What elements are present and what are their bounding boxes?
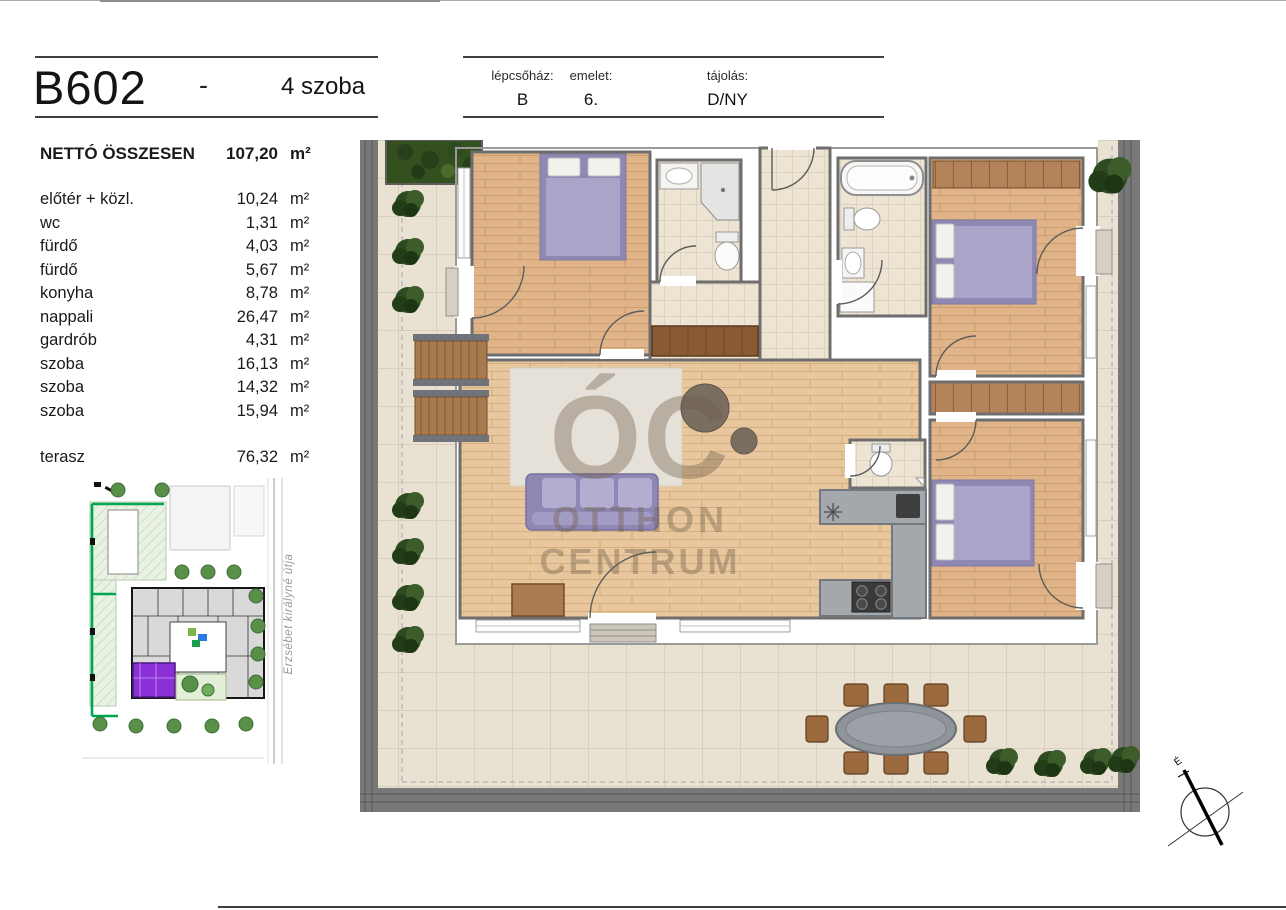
watermark: ÓC OTTHON CENTRUM [540, 372, 741, 582]
title-rule-bottom [35, 116, 378, 118]
washer [840, 282, 874, 312]
field-orientation-label: tájolás: [680, 68, 775, 83]
floorplan-sheet: B602 - 4 szoba lépcsőház: B emelet: 6. t… [0, 0, 1286, 910]
unit-id: B602 [33, 60, 147, 115]
field-floor-value: 6. [546, 90, 636, 110]
toilet [854, 208, 880, 230]
header-rule-bottom [463, 116, 884, 118]
area-row: wc1,31m² [40, 212, 312, 236]
page-top-border-dark [100, 0, 440, 2]
compass-needle [1184, 770, 1222, 845]
watermark-line2: CENTRUM [540, 541, 741, 582]
terrace-value: 76,32 [212, 446, 278, 470]
area-row: gardrób4,31m² [40, 329, 312, 353]
watermark-line1: OTTHON [552, 499, 728, 540]
watermark-logo: ÓC [550, 372, 731, 504]
total-unit: m² [278, 142, 312, 166]
page-bottom-border [218, 906, 1286, 908]
site-highlighted-unit [133, 663, 175, 697]
area-row: szoba14,32m² [40, 376, 312, 400]
area-row: fürdő4,03m² [40, 235, 312, 259]
title-separator: - [199, 70, 208, 101]
area-row: fürdő5,67m² [40, 259, 312, 283]
floor-plan: ÓC OTTHON CENTRUM [360, 140, 1140, 812]
stove [852, 582, 890, 612]
compass: É [1150, 750, 1260, 860]
area-row: előtér + közl.10,24m² [40, 188, 312, 212]
title-rule-top [35, 56, 378, 58]
header-rule-top [463, 56, 884, 58]
area-rows: előtér + közl.10,24m² wc1,31m² fürdő4,03… [40, 188, 312, 423]
site-courtyard-garden [176, 674, 226, 700]
street-name-label: Erzsébet királyné útja [283, 554, 295, 675]
toilet [715, 242, 739, 270]
bed-1 [540, 154, 626, 260]
living-cabinet [512, 584, 564, 616]
area-row: szoba16,13m² [40, 353, 312, 377]
area-row: szoba15,94m² [40, 400, 312, 424]
total-label: NETTÓ ÖSSZESEN [40, 142, 212, 166]
bedroom2-wardrobe [933, 161, 1080, 188]
field-orientation-value: D/NY [680, 90, 775, 110]
compass-north-label: É [1171, 754, 1184, 769]
area-row: nappali26,47m² [40, 306, 312, 330]
bed-3 [932, 480, 1034, 566]
bed-2 [932, 220, 1036, 304]
field-orientation: tájolás: D/NY [680, 68, 775, 110]
field-floor: emelet: 6. [546, 68, 636, 110]
side-table [731, 428, 757, 454]
field-floor-label: emelet: [546, 68, 636, 83]
hall-console [652, 326, 758, 356]
area-total-row: NETTÓ ÖSSZESEN 107,20 m² [40, 142, 312, 166]
area-row: konyha8,78m² [40, 282, 312, 306]
room-count: 4 szoba [281, 73, 365, 101]
total-value: 107,20 [212, 142, 278, 166]
area-terrace-row: terasz 76,32 m² [40, 446, 312, 470]
terrace-label: terasz [40, 446, 212, 470]
room-wardrobe [930, 382, 1083, 414]
site-map: Erzsébet királyné útja [78, 476, 312, 768]
